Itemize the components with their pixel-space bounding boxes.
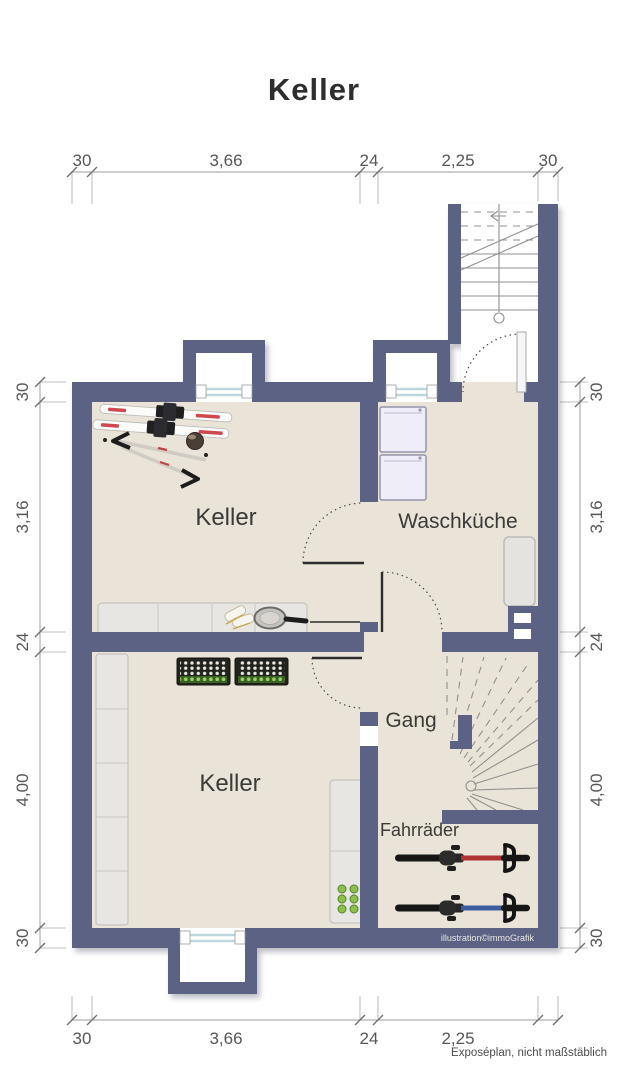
dim-label: 3,16 — [13, 500, 32, 533]
room-label-gang: Gang — [385, 709, 436, 732]
dim-label: 3,66 — [209, 1029, 242, 1048]
stair-passage-floor — [461, 382, 524, 402]
chimney-block — [508, 606, 538, 652]
dim-label: 30 — [13, 929, 32, 948]
doorway-floor — [364, 632, 442, 652]
dim-label: 4,00 — [13, 773, 32, 806]
doorway-floor — [360, 652, 378, 712]
dim-label: 24 — [360, 1029, 379, 1048]
room-label-waschkueche: Waschküche — [398, 510, 517, 533]
dim-label: 3,66 — [209, 151, 242, 170]
dim-label: 30 — [587, 929, 606, 948]
shelf-left — [96, 654, 128, 925]
floor-plan-page: Keller 30 3,66 24 2,25 30 30 3,66 24 2,2… — [0, 0, 628, 1080]
dim-label: 24 — [587, 633, 606, 652]
dim-label: 30 — [539, 151, 558, 170]
dim-label: 2,25 — [441, 1029, 474, 1048]
dim-label: 30 — [73, 151, 92, 170]
dim-label: 24 — [13, 633, 32, 652]
washing-machine — [380, 407, 426, 452]
dim-label: 30 — [73, 1029, 92, 1048]
dim-label: 30 — [13, 383, 32, 402]
window-well-bottom — [180, 948, 245, 982]
room-label-fahrraeder: Fahrräder — [380, 820, 459, 840]
footer-note: Exposéplan, nicht maßstäblich — [451, 1047, 607, 1059]
window-bottom — [180, 928, 245, 948]
room-label-keller-bottom: Keller — [199, 770, 260, 797]
dim-label: 30 — [587, 383, 606, 402]
dim-label: 4,00 — [587, 773, 606, 806]
floor-plan: Keller 30 3,66 24 2,25 30 30 3,66 24 2,2… — [0, 0, 628, 1080]
dim-label: 24 — [360, 151, 379, 170]
wall-niche — [360, 726, 378, 746]
room-gang-fahrraeder-floor — [378, 652, 538, 928]
credit-text: illustration©immoGrafik — [441, 933, 535, 943]
washing-machine — [380, 455, 426, 500]
room-label-keller-top: Keller — [195, 504, 256, 531]
window-top-left — [196, 382, 252, 402]
ski-helmet — [187, 433, 204, 450]
dim-label: 2,25 — [441, 151, 474, 170]
window-top-right — [386, 382, 437, 402]
page-title: Keller — [268, 72, 360, 107]
cabinet — [504, 537, 535, 606]
dim-label: 3,16 — [587, 500, 606, 533]
